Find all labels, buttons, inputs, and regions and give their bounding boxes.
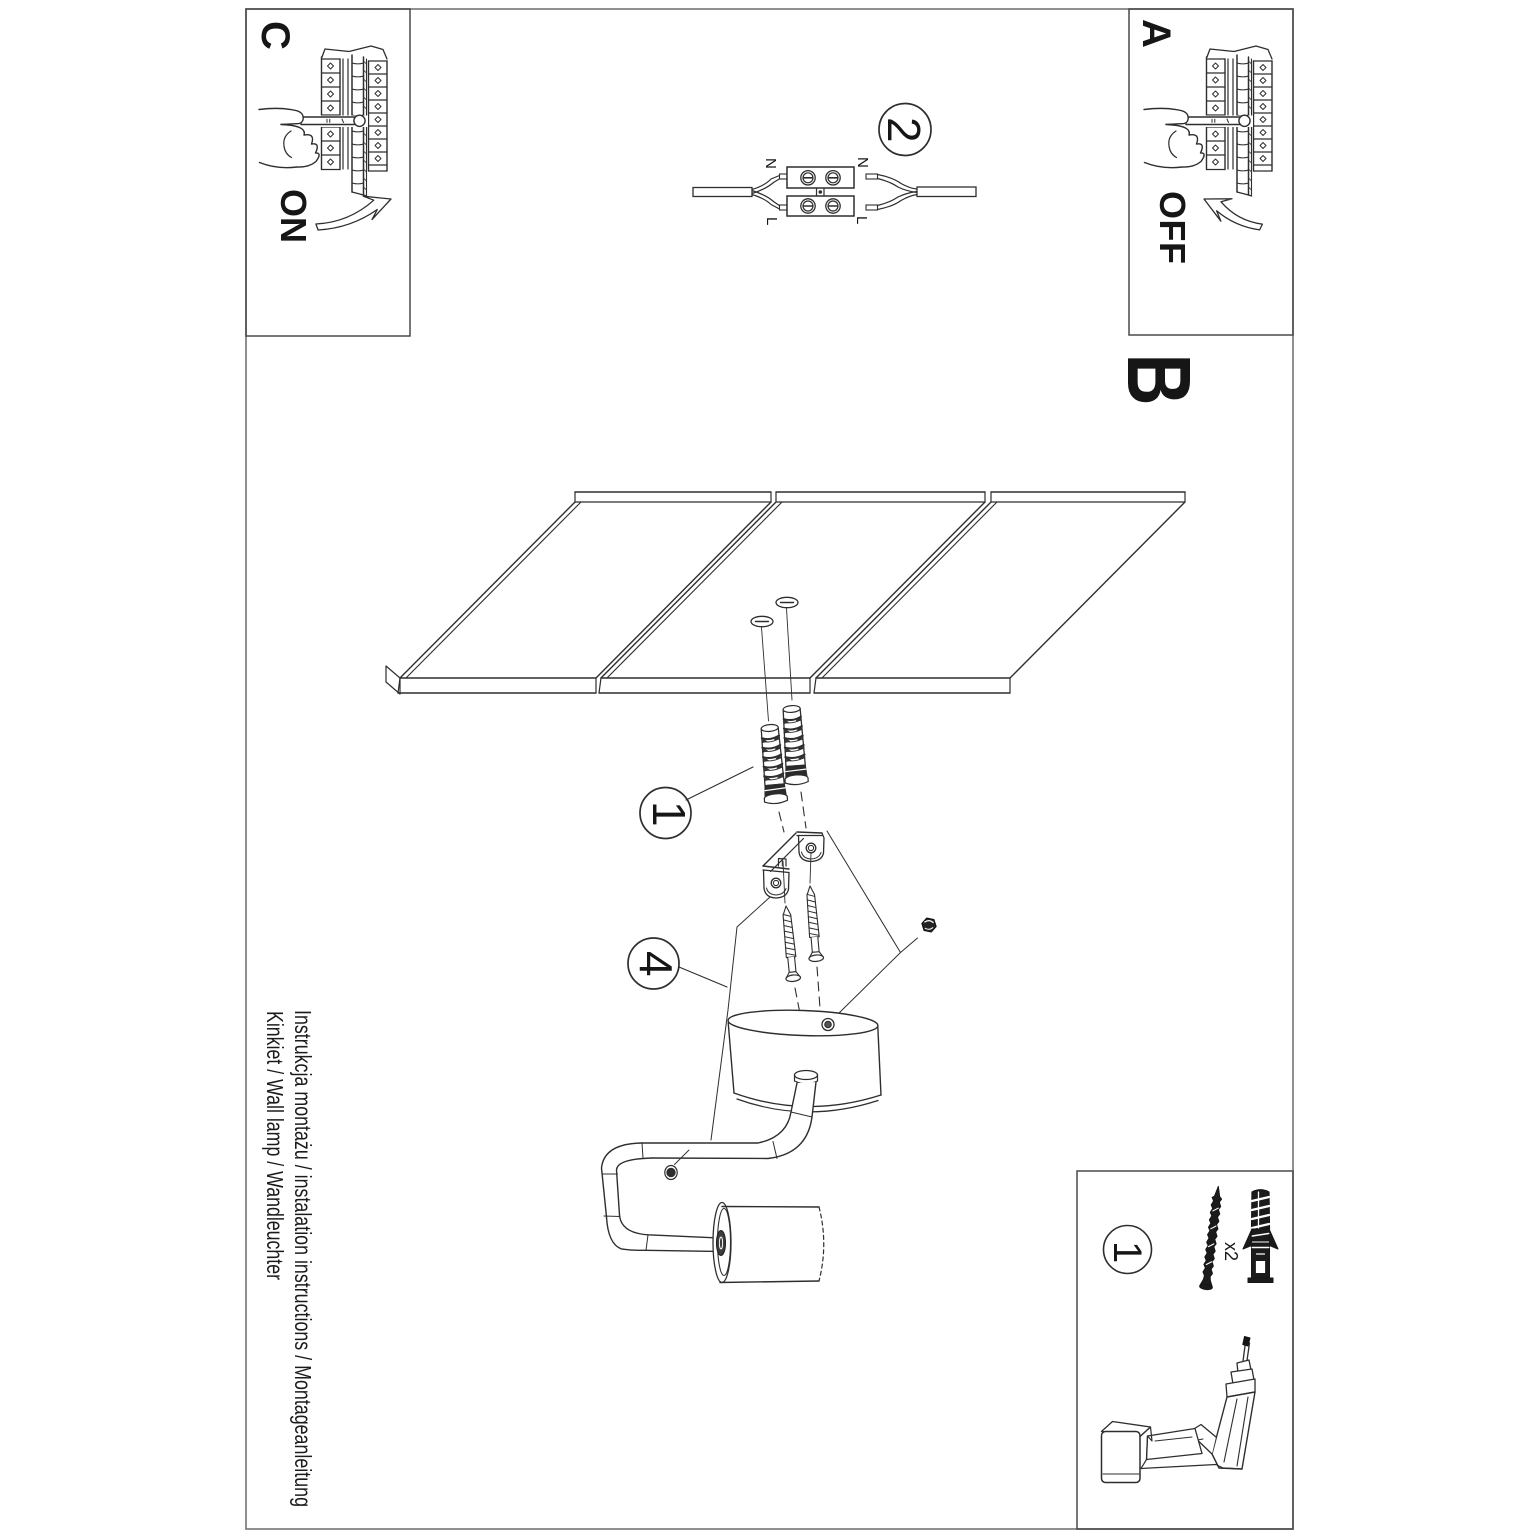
svg-text:ON: ON xyxy=(273,189,314,243)
svg-text:OFF: OFF xyxy=(1152,191,1193,264)
svg-text:4: 4 xyxy=(630,951,682,977)
svg-text:Kinkiet / Wall lamp / Wandleuc: Kinkiet / Wall lamp / Wandleuchter xyxy=(262,1011,288,1280)
svg-text:A: A xyxy=(1134,19,1178,48)
svg-text:B: B xyxy=(1108,354,1208,406)
svg-text:x2: x2 xyxy=(1221,1242,1241,1261)
svg-text:N: N xyxy=(854,157,871,168)
svg-text:L: L xyxy=(763,217,780,225)
svg-text:2: 2 xyxy=(878,117,930,143)
svg-text:N: N xyxy=(762,158,779,169)
svg-text:1: 1 xyxy=(1105,1241,1149,1263)
svg-text:C: C xyxy=(253,21,297,50)
svg-text:1: 1 xyxy=(643,801,695,827)
svg-text:Instrukcja montażu / instalati: Instrukcja montażu / instalation instruc… xyxy=(290,1010,316,1507)
svg-text:L: L xyxy=(853,216,870,224)
